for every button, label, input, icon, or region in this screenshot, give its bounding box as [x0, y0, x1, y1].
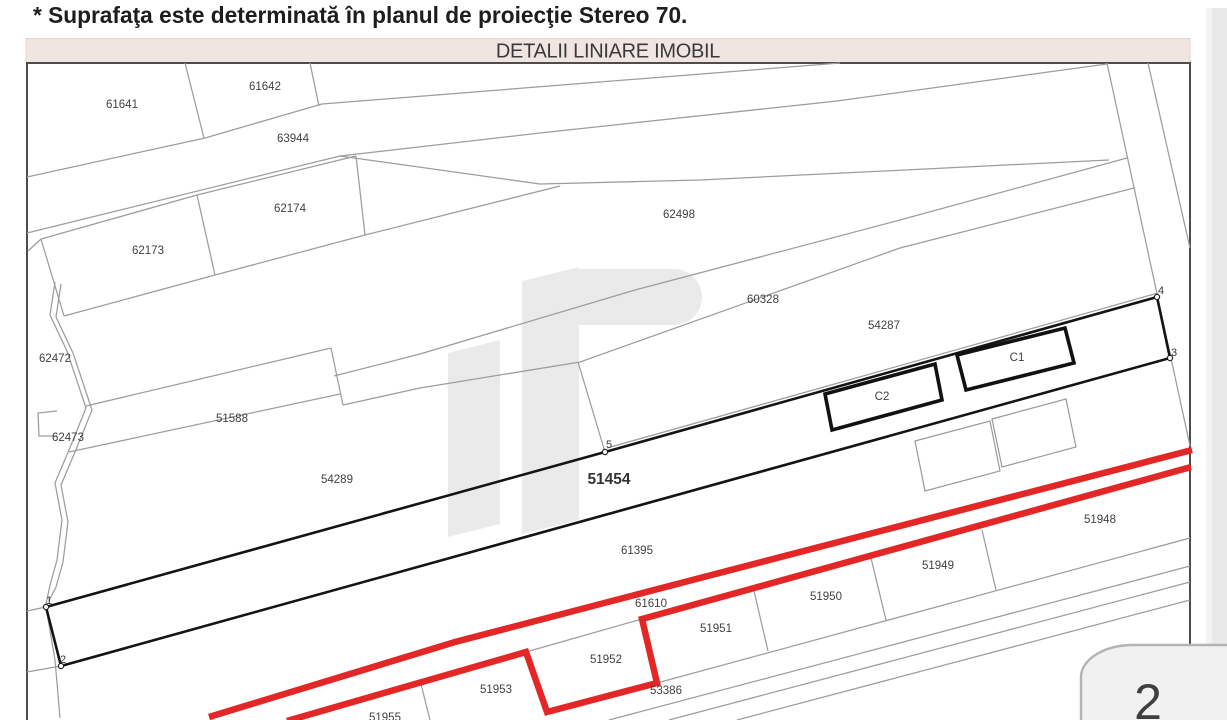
svg-text:3: 3	[1171, 347, 1177, 359]
svg-text:C1: C1	[1010, 352, 1025, 364]
svg-text:60328: 60328	[747, 294, 779, 306]
svg-text:62174: 62174	[274, 203, 307, 215]
svg-text:62498: 62498	[663, 209, 695, 221]
svg-text:DETALII LINIARE IMOBIL: DETALII LINIARE IMOBIL	[496, 41, 720, 63]
svg-text:5: 5	[606, 439, 612, 451]
svg-text:62473: 62473	[52, 432, 84, 444]
svg-text:63944: 63944	[277, 133, 310, 145]
svg-text:1: 1	[46, 595, 52, 607]
svg-text:51949: 51949	[922, 560, 954, 572]
svg-text:51955: 51955	[369, 712, 401, 720]
svg-text:2: 2	[60, 654, 66, 666]
svg-text:51951: 51951	[700, 623, 732, 635]
svg-text:* Suprafaţa este determinată î: * Suprafaţa este determinată în planul d…	[33, 2, 687, 28]
svg-text:62173: 62173	[132, 245, 164, 257]
svg-text:C2: C2	[875, 391, 890, 403]
svg-text:61642: 61642	[249, 81, 281, 93]
svg-text:51948: 51948	[1084, 514, 1116, 526]
svg-text:51454: 51454	[587, 471, 630, 488]
svg-text:54289: 54289	[321, 474, 353, 486]
svg-text:61610: 61610	[635, 598, 667, 610]
svg-text:2: 2	[1134, 674, 1162, 720]
svg-text:54287: 54287	[868, 320, 900, 332]
svg-text:53386: 53386	[650, 685, 682, 697]
svg-text:62472: 62472	[39, 353, 71, 365]
svg-text:51952: 51952	[590, 654, 622, 666]
svg-text:51950: 51950	[810, 591, 842, 603]
svg-text:51953: 51953	[480, 684, 512, 696]
svg-text:61395: 61395	[621, 545, 653, 557]
svg-text:51588: 51588	[216, 413, 248, 425]
svg-text:61641: 61641	[106, 99, 138, 111]
svg-text:4: 4	[1158, 285, 1164, 297]
